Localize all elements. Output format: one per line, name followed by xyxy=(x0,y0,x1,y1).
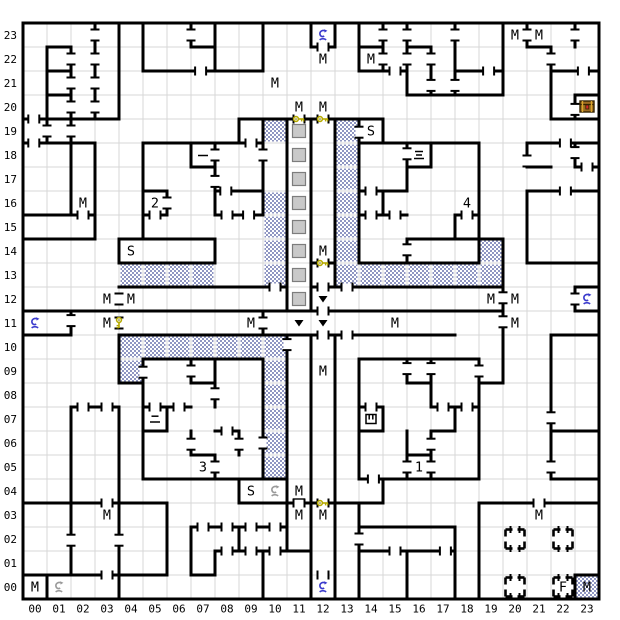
door-gap xyxy=(246,548,257,555)
marker-m: M xyxy=(391,316,399,332)
door-gap xyxy=(428,54,435,65)
door-gap xyxy=(220,188,231,195)
door-gap xyxy=(366,404,377,411)
door-gap xyxy=(260,150,267,161)
row-label: 19 xyxy=(4,125,17,138)
row-label: 01 xyxy=(4,557,17,570)
dark-zone-cell xyxy=(337,121,358,142)
marker-m: M xyxy=(583,580,591,596)
row-label: 21 xyxy=(4,77,17,90)
door-gap xyxy=(390,212,401,219)
door-gap xyxy=(116,294,123,305)
col-label: 23 xyxy=(580,603,593,616)
col-label: 13 xyxy=(340,603,353,616)
door-gap xyxy=(246,524,257,531)
col-label: 00 xyxy=(28,603,41,616)
door-gap xyxy=(318,332,329,339)
chest-gem xyxy=(586,105,589,109)
marker-m: M xyxy=(127,292,135,308)
col-label: 03 xyxy=(100,603,113,616)
marker-s: S xyxy=(127,244,135,260)
door-gap xyxy=(342,284,353,291)
door-gap xyxy=(572,147,579,158)
door-gap xyxy=(404,244,411,255)
door-gap xyxy=(188,439,195,450)
door-gap xyxy=(572,30,579,41)
door-gap xyxy=(356,534,363,545)
door-gap xyxy=(68,126,75,137)
dark-zone-cell xyxy=(481,241,502,262)
door-gap xyxy=(212,462,219,473)
door-gap xyxy=(212,388,219,399)
row-label: 22 xyxy=(4,53,17,66)
door-gap xyxy=(260,318,267,329)
marker-m: M xyxy=(295,508,303,524)
row-label: 11 xyxy=(4,317,17,330)
marker-m: M xyxy=(79,196,87,212)
door-gap xyxy=(440,548,451,555)
marker-m: M xyxy=(103,292,111,308)
door-gap xyxy=(78,404,89,411)
door-gap xyxy=(380,54,387,65)
col-label: 02 xyxy=(76,603,89,616)
door-gap xyxy=(92,102,99,113)
row-label: 08 xyxy=(4,389,17,402)
door-gap xyxy=(500,292,507,303)
door-gap xyxy=(150,404,161,411)
dark-zone-cell xyxy=(265,385,286,406)
dark-zone-cell xyxy=(265,361,286,382)
door-gap xyxy=(534,500,545,507)
door-gap xyxy=(318,44,329,51)
door-gap xyxy=(294,500,305,507)
row-label: 06 xyxy=(4,437,17,450)
col-label: 11 xyxy=(292,603,305,616)
door-gap xyxy=(68,315,75,326)
door-gap xyxy=(578,68,589,75)
marker-m: M xyxy=(319,364,327,380)
door-gap xyxy=(582,164,593,171)
row-label: 00 xyxy=(4,581,17,594)
dark-zone-cell xyxy=(409,265,430,286)
col-label: 01 xyxy=(52,603,65,616)
door-gap xyxy=(368,476,379,483)
dark-zone-cell xyxy=(265,337,286,358)
dark-zone-cell xyxy=(265,265,286,286)
door-gap xyxy=(318,572,329,579)
row-label: 14 xyxy=(4,245,18,258)
row-label: 03 xyxy=(4,509,17,522)
door-gap xyxy=(68,54,75,65)
col-label: 05 xyxy=(148,603,161,616)
dark-zone-cell xyxy=(265,457,286,478)
door-gap xyxy=(524,156,531,167)
door-gap xyxy=(236,439,243,450)
door-gap xyxy=(222,548,233,555)
door-gap xyxy=(270,284,281,291)
door-gap xyxy=(188,30,195,41)
rock-square xyxy=(293,221,306,234)
door-gap xyxy=(102,500,113,507)
col-label: 18 xyxy=(460,603,473,616)
door-gap xyxy=(366,212,377,219)
marker-m: M xyxy=(535,508,543,524)
door-gap xyxy=(222,524,233,531)
marker-2: 2 xyxy=(151,196,159,212)
dark-zone-cell xyxy=(337,169,358,190)
dark-zone-cell xyxy=(337,217,358,238)
door-gap xyxy=(500,316,507,327)
dark-zone-cell xyxy=(457,265,478,286)
marker-1: 1 xyxy=(415,460,423,476)
door-gap xyxy=(222,212,233,219)
door-gap xyxy=(78,212,89,219)
dark-zone-cell xyxy=(121,337,142,358)
dark-zone-cell xyxy=(337,265,358,286)
row-label: 20 xyxy=(4,101,17,114)
row-label: 13 xyxy=(4,269,17,282)
dark-zone-cell xyxy=(121,361,142,382)
door-gap xyxy=(404,462,411,473)
door-gap xyxy=(476,366,483,377)
marker-m: M xyxy=(535,28,543,44)
col-label: 21 xyxy=(532,603,545,616)
col-label: 20 xyxy=(508,603,521,616)
row-label: 02 xyxy=(4,533,17,546)
door-gap xyxy=(572,294,579,305)
door-gap xyxy=(243,212,254,219)
row-label: 17 xyxy=(4,173,17,186)
dark-zone-cell xyxy=(385,265,406,286)
row-label: 09 xyxy=(4,365,17,378)
door-gap xyxy=(548,54,555,65)
door-gap xyxy=(524,30,531,41)
dark-zone-cell xyxy=(145,337,166,358)
door-gap xyxy=(428,462,435,473)
door-gap xyxy=(28,116,39,123)
col-label: 17 xyxy=(436,603,449,616)
door-gap xyxy=(92,78,99,89)
door-gap xyxy=(284,339,291,350)
row-label: 05 xyxy=(4,461,17,474)
marker-4: 4 xyxy=(463,196,471,212)
door-gap xyxy=(212,176,219,187)
door-gap xyxy=(150,212,161,219)
marker-m: M xyxy=(511,292,519,308)
marker-m: M xyxy=(319,508,327,524)
door-gap xyxy=(44,126,51,137)
marker-f: F xyxy=(559,580,567,596)
door-gap xyxy=(174,404,185,411)
row-label: 23 xyxy=(4,29,17,42)
door-gap xyxy=(270,548,281,555)
door-gap xyxy=(342,332,353,339)
col-label: 10 xyxy=(268,603,281,616)
door-gap xyxy=(548,412,555,423)
door-gap xyxy=(356,127,363,138)
col-label: 04 xyxy=(124,603,138,616)
door-gap xyxy=(560,140,571,147)
door-gap xyxy=(428,80,435,91)
col-label: 09 xyxy=(244,603,257,616)
marker-m: M xyxy=(319,100,327,116)
marker-m: M xyxy=(511,316,519,332)
dark-zone-cell xyxy=(337,145,358,166)
door-gap xyxy=(92,30,99,41)
rock-square xyxy=(293,197,306,210)
door-gap xyxy=(404,54,411,65)
rock-square xyxy=(293,149,306,162)
door-gap xyxy=(390,68,401,75)
dark-zone-cell xyxy=(481,265,502,286)
marker-s: S xyxy=(367,124,375,140)
rock-square xyxy=(293,125,306,138)
dark-zone-cell xyxy=(265,241,286,262)
marker-m: M xyxy=(295,100,303,116)
door-gap xyxy=(438,404,449,411)
rock-square xyxy=(293,173,306,186)
col-label: 19 xyxy=(484,603,497,616)
dark-zone-cell xyxy=(361,265,382,286)
col-label: 08 xyxy=(220,603,233,616)
door-gap xyxy=(68,78,75,89)
door-gap xyxy=(404,30,411,41)
door-gap xyxy=(462,212,473,219)
dark-zone-cell xyxy=(169,337,190,358)
col-label: 14 xyxy=(364,603,378,616)
door-gap xyxy=(140,367,147,378)
marker-m: M xyxy=(103,316,111,332)
col-label: 12 xyxy=(316,603,329,616)
door-gap xyxy=(28,140,39,147)
col-label: 22 xyxy=(556,603,569,616)
door-gap xyxy=(428,363,435,374)
marker-m: M xyxy=(511,28,519,44)
row-label: 16 xyxy=(4,197,17,210)
marker-m: M xyxy=(367,52,375,68)
door-gap xyxy=(404,363,411,374)
row-label: 04 xyxy=(4,485,18,498)
door-gap xyxy=(68,102,75,113)
door-gap xyxy=(380,30,387,41)
door-gap xyxy=(560,188,571,195)
marker-m: M xyxy=(319,244,327,260)
col-label: 16 xyxy=(412,603,425,616)
marker-3: 3 xyxy=(199,460,207,476)
marker-m: M xyxy=(31,580,39,596)
dark-zone-cell xyxy=(265,193,286,214)
dark-zone-cell xyxy=(145,265,166,286)
marker-s: S xyxy=(247,484,255,500)
door-gap xyxy=(548,462,555,473)
dark-zone-cell xyxy=(337,241,358,262)
rock-square xyxy=(293,269,306,282)
door-gap xyxy=(102,404,113,411)
col-label: 07 xyxy=(196,603,209,616)
dark-zone-cell xyxy=(337,193,358,214)
door-gap xyxy=(270,524,281,531)
col-label: 06 xyxy=(172,603,185,616)
dark-zone-cell xyxy=(265,121,286,142)
col-label: 15 xyxy=(388,603,401,616)
door-gap xyxy=(164,198,171,209)
door-gap xyxy=(92,54,99,65)
dark-zone-cell xyxy=(265,433,286,454)
row-label: 15 xyxy=(4,221,17,234)
marker-m: M xyxy=(103,508,111,524)
door-gap xyxy=(222,428,233,435)
dark-zone-cell xyxy=(265,217,286,238)
door-gap xyxy=(195,68,206,75)
door-gap xyxy=(366,188,377,195)
row-label: 10 xyxy=(4,341,17,354)
marker-m: M xyxy=(319,52,327,68)
dark-zone-cell xyxy=(217,337,238,358)
dark-zone-cell xyxy=(193,265,214,286)
door-gap xyxy=(318,284,329,291)
door-gap xyxy=(318,308,329,315)
marker-m: M xyxy=(247,316,255,332)
dungeon-map-page: MMMMMMMMMMMMMMMMMMMMMMMMMSSS2431F2322212… xyxy=(0,0,620,620)
marker-m: M xyxy=(295,484,303,500)
door-gap xyxy=(212,150,219,161)
rock-square xyxy=(293,245,306,258)
door-gap xyxy=(102,572,113,579)
marker-m: M xyxy=(487,292,495,308)
rock-square xyxy=(293,293,306,306)
door-gap xyxy=(572,104,579,115)
dark-zone-cell xyxy=(121,265,142,286)
row-label: 07 xyxy=(4,413,17,426)
door-gap xyxy=(462,404,473,411)
dark-zone-cell xyxy=(169,265,190,286)
door-gap xyxy=(198,524,209,531)
door-gap xyxy=(428,439,435,450)
dark-zone-cell xyxy=(241,337,262,358)
door-gap xyxy=(483,68,494,75)
dark-zone-cell xyxy=(433,265,454,286)
row-label: 12 xyxy=(4,293,17,306)
door-gap xyxy=(116,535,123,546)
row-label: 18 xyxy=(4,149,17,162)
door-gap xyxy=(188,366,195,377)
door-gap xyxy=(452,80,459,91)
door-gap xyxy=(404,148,411,159)
dark-zone-cell xyxy=(265,409,286,430)
marker-m: M xyxy=(271,76,279,92)
door-gap xyxy=(68,535,75,546)
door-gap xyxy=(452,30,459,41)
dark-zone-cell xyxy=(193,337,214,358)
door-gap xyxy=(246,140,257,147)
map-canvas[interactable]: MMMMMMMMMMMMMMMMMMMMMMMMMSSS2431F2322212… xyxy=(0,0,620,620)
door-gap xyxy=(390,548,401,555)
door-gap xyxy=(260,438,267,449)
